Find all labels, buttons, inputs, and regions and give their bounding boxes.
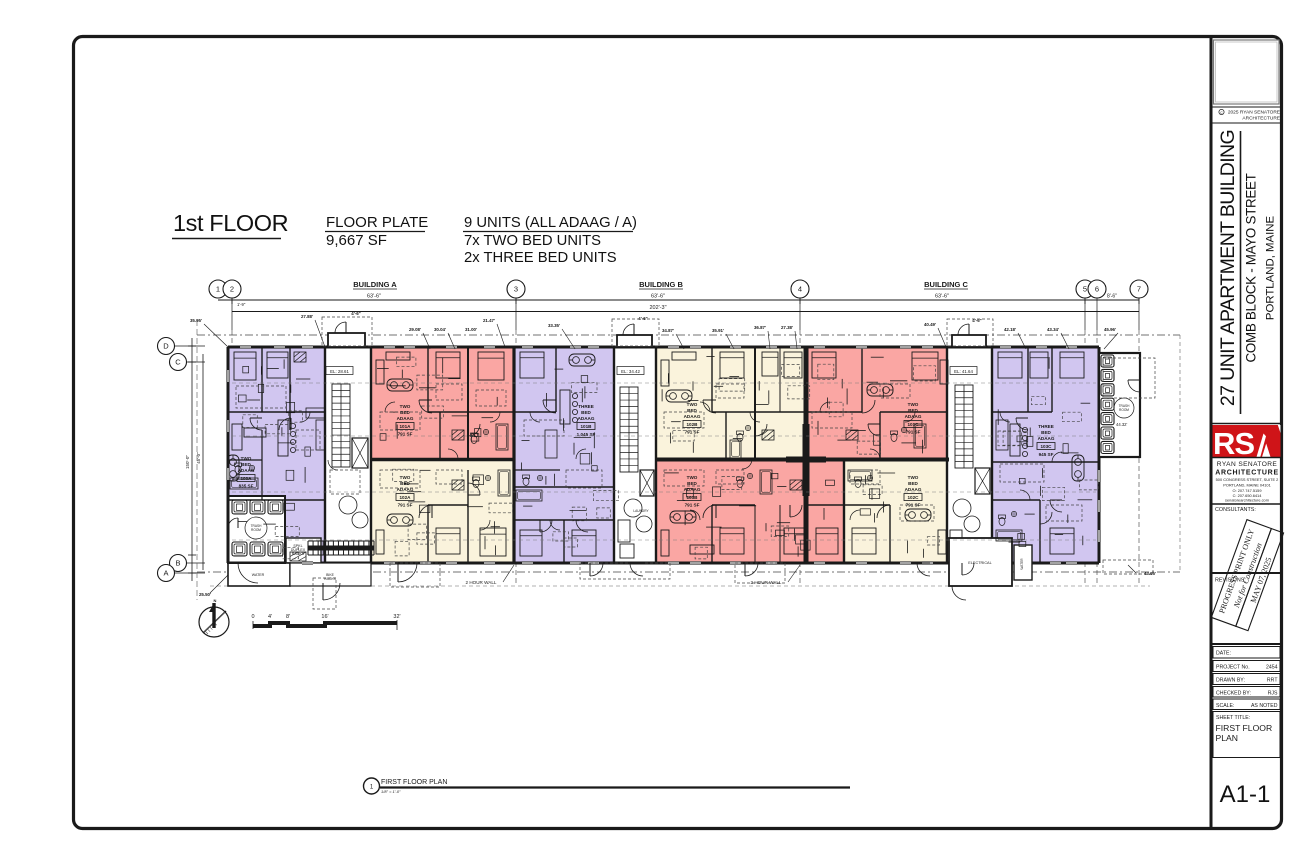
svg-text:4: 4	[798, 285, 802, 294]
svg-text:102B: 102B	[687, 422, 699, 427]
svg-text:BED: BED	[908, 481, 918, 486]
svg-text:FLOOR PLATE: FLOOR PLATE	[326, 214, 428, 231]
svg-text:PORTLAND, MAINE: PORTLAND, MAINE	[1265, 215, 1277, 320]
svg-text:16': 16'	[321, 614, 328, 620]
svg-text:B: B	[175, 559, 180, 568]
svg-text:REVISIONS:: REVISIONS:	[1215, 578, 1246, 584]
svg-text:FIRST FLOOR PLAN: FIRST FLOOR PLAN	[381, 779, 447, 786]
svg-text:EL: 34.42: EL: 34.42	[621, 369, 640, 374]
svg-text:ADAAG: ADAAG	[578, 416, 595, 421]
svg-text:EL: 41.64: EL: 41.64	[954, 369, 973, 374]
svg-text:8': 8'	[286, 614, 290, 620]
svg-text:8'-6": 8'-6"	[1107, 294, 1117, 300]
svg-text:PORTLAND, MAINE 04101: PORTLAND, MAINE 04101	[1223, 483, 1271, 488]
svg-text:TWO: TWO	[687, 402, 698, 407]
svg-text:791 SF: 791 SF	[906, 430, 921, 435]
svg-text:RACKS: RACKS	[324, 577, 336, 581]
svg-text:35.95': 35.95'	[190, 318, 202, 323]
svg-text:AS NOTED: AS NOTED	[1251, 703, 1278, 709]
svg-text:ROOM: ROOM	[251, 528, 261, 532]
svg-text:500 CONGRESS STREET, SUITE 2: 500 CONGRESS STREET, SUITE 2	[1216, 477, 1279, 482]
svg-text:ROOM: ROOM	[1119, 408, 1129, 412]
svg-text:6: 6	[1095, 285, 1099, 294]
svg-text:ADAAG: ADAAG	[1038, 436, 1055, 441]
svg-text:A: A	[163, 569, 168, 578]
svg-text:101C: 101C	[908, 422, 920, 427]
svg-text:C: C	[175, 358, 181, 367]
svg-text:ADAAG: ADAAG	[238, 468, 255, 473]
svg-text:7: 7	[1137, 285, 1141, 294]
svg-text:CHECKED BY:: CHECKED BY:	[1216, 691, 1251, 697]
svg-text:RS: RS	[1213, 426, 1254, 461]
svg-text:EL: 28.61: EL: 28.61	[330, 369, 349, 374]
svg-text:1: 1	[216, 285, 220, 294]
svg-text:945 SF: 945 SF	[1039, 452, 1054, 457]
svg-text:835 SF: 835 SF	[239, 484, 254, 489]
svg-text:36.87': 36.87'	[754, 325, 766, 330]
svg-text:9 UNITS (ALL ADAAG / A): 9 UNITS (ALL ADAAG / A)	[464, 215, 637, 231]
svg-text:4': 4'	[268, 614, 272, 620]
svg-text:PROJECT No.: PROJECT No.	[1216, 665, 1250, 671]
svg-text:45.96': 45.96'	[1104, 327, 1116, 332]
svg-text:RYAN SENATORE: RYAN SENATORE	[1217, 461, 1278, 468]
svg-text:101A: 101A	[400, 424, 412, 429]
svg-text:DRAWN BY:: DRAWN BY:	[1216, 678, 1245, 684]
svg-text:2 HOUR WALL: 2 HOUR WALL	[466, 580, 497, 585]
svg-text:TWO: TWO	[400, 475, 411, 480]
svg-text:32': 32'	[393, 614, 400, 620]
svg-text:ADAAG: ADAAG	[905, 487, 922, 492]
svg-text:0: 0	[251, 614, 254, 620]
svg-text:TWO: TWO	[400, 404, 411, 409]
svg-text:ARCHITECTURE: ARCHITECTURE	[1215, 470, 1279, 477]
svg-text:103C: 103C	[1041, 444, 1053, 449]
svg-text:BUILDING A: BUILDING A	[353, 280, 397, 289]
svg-text:102A: 102A	[400, 495, 412, 500]
svg-text:2454: 2454	[1266, 665, 1278, 671]
svg-text:30.04': 30.04'	[434, 327, 446, 332]
svg-text:5: 5	[1083, 285, 1087, 294]
svg-text:63'-6": 63'-6"	[935, 294, 949, 300]
svg-text:791 SF: 791 SF	[398, 432, 413, 437]
svg-text:SHEET TITLE:: SHEET TITLE:	[1216, 715, 1250, 721]
svg-text:2x THREE BED UNITS: 2x THREE BED UNITS	[464, 250, 617, 266]
svg-text:63'-6": 63'-6"	[651, 294, 665, 300]
svg-text:ARCHITECTURE: ARCHITECTURE	[1242, 116, 1280, 122]
svg-text:TWO: TWO	[908, 402, 919, 407]
svg-text:D: D	[163, 342, 169, 351]
svg-text:LAUNDRY: LAUNDRY	[633, 509, 649, 513]
svg-text:3: 3	[514, 285, 518, 294]
svg-text:100A: 100A	[241, 476, 253, 481]
svg-text:BUILDING B: BUILDING B	[639, 280, 683, 289]
svg-text:2025 RYAN SENATORE: 2025 RYAN SENATORE	[1228, 110, 1280, 116]
svg-text:TWO: TWO	[908, 475, 919, 480]
svg-text:TWO: TWO	[241, 456, 252, 461]
svg-text:BED: BED	[581, 410, 591, 415]
svg-text:102C: 102C	[908, 495, 920, 500]
svg-text:ELECTRICAL: ELECTRICAL	[968, 561, 991, 565]
svg-text:PLAN: PLAN	[1216, 733, 1238, 743]
svg-text:103B: 103B	[687, 495, 699, 500]
svg-text:THREE: THREE	[1038, 424, 1054, 429]
svg-text:BUILDING C: BUILDING C	[924, 280, 968, 289]
svg-text:34.87': 34.87'	[662, 328, 674, 333]
svg-text:TWO: TWO	[687, 475, 698, 480]
svg-text:101B: 101B	[581, 424, 593, 429]
svg-text:BED: BED	[908, 408, 918, 413]
svg-text:150'-0": 150'-0"	[185, 455, 190, 469]
svg-text:43.95': 43.95'	[1144, 571, 1156, 576]
svg-text:FIRST FLOOR: FIRST FLOOR	[1216, 723, 1273, 733]
svg-text:21.47': 21.47'	[483, 318, 495, 323]
svg-text:2: 2	[230, 285, 234, 294]
svg-text:7x TWO BED UNITS: 7x TWO BED UNITS	[464, 233, 601, 249]
svg-text:9,667 SF: 9,667 SF	[326, 232, 387, 249]
svg-text:791 SF: 791 SF	[685, 503, 700, 508]
svg-text:27.88': 27.88'	[301, 314, 313, 319]
svg-text:25.50': 25.50'	[199, 592, 211, 597]
svg-text:A1-1: A1-1	[1220, 781, 1271, 808]
svg-text:BED: BED	[400, 410, 410, 415]
svg-text:COMB BLOCK - MAYO STREET: COMB BLOCK - MAYO STREET	[1244, 173, 1259, 362]
svg-text:2 HOUR WALL: 2 HOUR WALL	[751, 580, 782, 585]
svg-text:1/8" = 1'-0": 1/8" = 1'-0"	[381, 789, 401, 794]
svg-text:DATE:: DATE:	[1216, 651, 1231, 657]
svg-text:ADAAG: ADAAG	[684, 414, 701, 419]
svg-text:4'-6": 4'-6"	[972, 318, 981, 323]
svg-text:42.18': 42.18'	[1004, 327, 1016, 332]
svg-text:SCALE:: SCALE:	[1216, 703, 1234, 709]
svg-text:1'-9": 1'-9"	[237, 302, 246, 307]
svg-text:1st FLOOR: 1st FLOOR	[173, 210, 288, 236]
svg-text:senatorearchitecture.com: senatorearchitecture.com	[1225, 498, 1269, 503]
svg-text:4'-6": 4'-6"	[351, 311, 360, 316]
svg-text:27 UNIT APARTMENT BUILDING: 27 UNIT APARTMENT BUILDING	[1217, 130, 1239, 406]
svg-text:43.34': 43.34'	[1047, 327, 1059, 332]
svg-text:WATER: WATER	[252, 573, 265, 577]
svg-text:BED: BED	[687, 481, 697, 486]
svg-text:4'-6": 4'-6"	[638, 316, 647, 321]
svg-text:THREE: THREE	[578, 404, 594, 409]
svg-text:ADAAG: ADAAG	[397, 416, 414, 421]
svg-text:791 SF: 791 SF	[398, 503, 413, 508]
svg-text:27.38': 27.38'	[781, 325, 793, 330]
svg-text:RRT: RRT	[1267, 678, 1278, 684]
svg-text:CONSULTANTS:: CONSULTANTS:	[1215, 507, 1256, 513]
svg-text:35.91': 35.91'	[712, 328, 724, 333]
svg-text:44.32': 44.32'	[1116, 422, 1127, 427]
svg-text:BED: BED	[241, 462, 251, 467]
svg-text:202'-3": 202'-3"	[649, 305, 666, 311]
svg-text:63'-6": 63'-6"	[367, 294, 381, 300]
svg-text:RJS: RJS	[1268, 691, 1278, 697]
svg-text:N: N	[214, 598, 217, 603]
svg-text:29.08': 29.08'	[409, 327, 421, 332]
svg-text:1,045 SF: 1,045 SF	[577, 432, 596, 437]
svg-text:BED: BED	[1041, 430, 1051, 435]
svg-text:33.35': 33.35'	[548, 323, 560, 328]
svg-text:791 SF: 791 SF	[685, 430, 700, 435]
svg-text:31.00': 31.00'	[465, 327, 477, 332]
svg-text:WATER: WATER	[1020, 558, 1024, 570]
svg-text:40.49': 40.49'	[924, 322, 936, 327]
